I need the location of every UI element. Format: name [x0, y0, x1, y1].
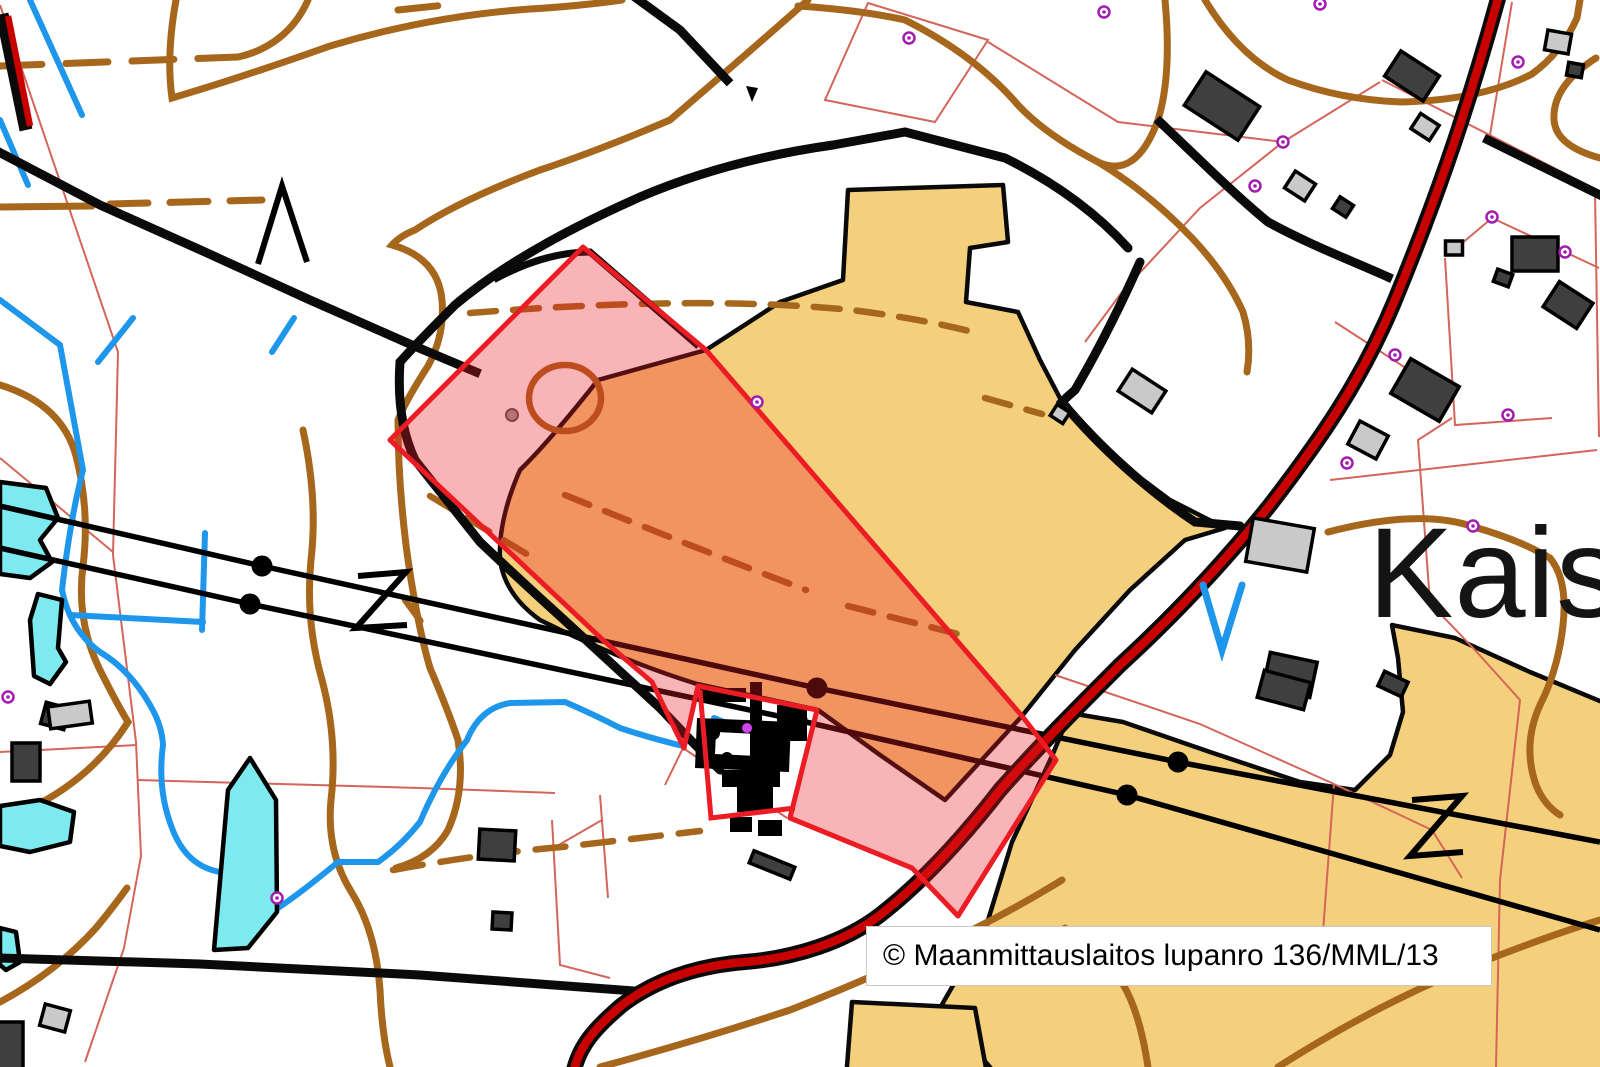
pylon-dot	[1117, 785, 1138, 806]
building-other	[1411, 113, 1439, 140]
pylon-dot	[240, 594, 261, 615]
road-bottom-left	[0, 958, 634, 991]
boundary-marker-dot	[755, 400, 759, 404]
building-residential	[0, 1022, 23, 1067]
map-viewport: Kais © Maanmittauslaitos lupanro 136/MML…	[0, 0, 1600, 1067]
field-bottom-piece	[846, 1002, 988, 1067]
boulder-icon	[258, 186, 307, 264]
building-residential	[1566, 62, 1583, 77]
boundary-marker-dot	[1563, 250, 1567, 254]
building-residential	[1391, 359, 1459, 422]
road-right-short	[1488, 140, 1600, 196]
building-other	[1348, 421, 1388, 459]
building-residential	[1385, 51, 1440, 101]
map-canvas: Kais	[0, 0, 1600, 1067]
building-residential	[1332, 197, 1353, 217]
building-other	[1118, 369, 1166, 413]
building-residential	[749, 851, 795, 880]
building-other	[1446, 241, 1463, 255]
boundary-marker-dot	[1345, 461, 1349, 465]
building-other	[1284, 171, 1315, 201]
building-other	[40, 1004, 71, 1032]
road-top-stub	[632, 0, 727, 80]
building-residential	[1543, 282, 1593, 329]
boundary-marker-dot	[1318, 2, 1322, 6]
boundary-marker-dot	[1253, 184, 1257, 188]
pylon-dot	[1168, 752, 1189, 773]
attribution-text: © Maanmittauslaitos lupanro 136/MML/13	[883, 939, 1439, 973]
building-residential	[492, 912, 512, 930]
boundary-marker-dot	[275, 896, 279, 900]
boundary-marker-dot	[1102, 10, 1106, 14]
attribution-box: © Maanmittauslaitos lupanro 136/MML/13	[866, 926, 1492, 986]
boundary-marker-dot	[1516, 60, 1520, 64]
boundary-marker-dot	[1393, 353, 1397, 357]
place-label: Kais	[1368, 502, 1600, 645]
road-upper-left	[0, 150, 476, 372]
power-line-z-icon	[356, 572, 407, 628]
building-residential	[478, 829, 516, 861]
cliff-tick-icon	[746, 86, 758, 102]
building-residential	[1493, 269, 1512, 287]
road-top-right	[1160, 122, 1388, 277]
building-other	[48, 701, 93, 729]
building-other	[1544, 30, 1571, 54]
boundary-marker-dot	[6, 695, 10, 699]
cluster-magenta-marker	[742, 723, 752, 733]
building-residential	[1512, 237, 1558, 271]
boundary-marker-dot	[1506, 413, 1510, 417]
building-residential	[1184, 72, 1259, 140]
building-residential	[12, 743, 40, 781]
building-other	[1246, 518, 1315, 572]
pylon-dot	[252, 556, 273, 577]
spring-icon	[1203, 585, 1242, 650]
boundary-marker-dot	[907, 36, 911, 40]
boundary-marker-dot	[1490, 215, 1494, 219]
boundary-marker-dot	[1281, 140, 1285, 144]
